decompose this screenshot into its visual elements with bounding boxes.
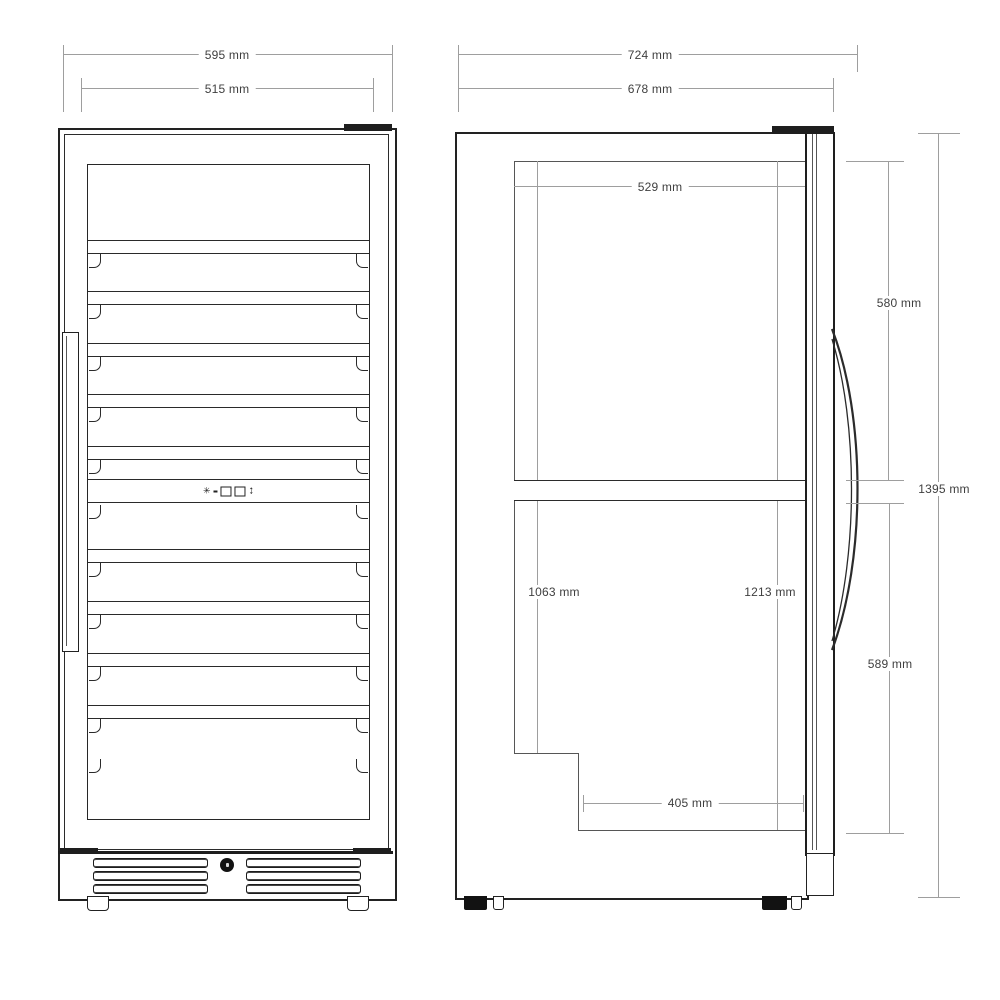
dim-label-lower-zone-height: 589 mm [862, 657, 919, 671]
shelf-bracket [89, 254, 101, 268]
front-door-bottom-corner-left [60, 848, 98, 852]
wine-shelf [88, 549, 369, 563]
dim-label-interior-height-rear: 1063 mm [522, 585, 585, 599]
shelf-bracket [356, 408, 368, 422]
wine-shelf [88, 446, 369, 460]
cavity-top-line [514, 161, 805, 162]
vent-slat [93, 858, 208, 868]
dim-upper-zone-tick-top [846, 161, 904, 162]
control-icons: ✳↕ [203, 486, 254, 497]
display-button-icon [221, 486, 232, 496]
dim-label-total-height: 1395 mm [912, 482, 975, 496]
shelf-bracket [89, 719, 101, 733]
side-roller-rear [791, 896, 802, 910]
shelf-bracket [356, 667, 368, 681]
dim-total-height-tick-bottom [918, 897, 960, 898]
dim-label-interior-height-front: 1213 mm [738, 585, 801, 599]
dim-lower-zone-tick-bottom [846, 833, 904, 834]
dim-label-interior-depth: 529 mm [632, 180, 689, 194]
wine-shelf [88, 653, 369, 667]
dimension-drawing: 595 mm 515 mm ✳↕ 724 mm 678 mm [0, 0, 1000, 1000]
shelf-bracket [89, 305, 101, 319]
vent-slat [246, 884, 361, 894]
side-roller-front [493, 896, 504, 910]
side-dim-body-ext-front [833, 78, 834, 112]
shelf-bracket [89, 759, 101, 773]
zone-divider-shelf [514, 480, 805, 501]
side-door-glass-line-2 [816, 134, 817, 850]
shelf-bracket [89, 357, 101, 371]
wine-shelf [88, 601, 369, 615]
side-door-bottom-block [806, 853, 834, 896]
front-foot-left [87, 896, 109, 911]
display-button-icon [235, 486, 246, 496]
front-foot-right [347, 896, 369, 911]
vent-slat [93, 871, 208, 881]
dim-base-depth-tick-right [803, 795, 804, 812]
asterisk-icon: ✳ [203, 487, 211, 496]
front-top-hinge [344, 124, 392, 131]
front-dim-inner-ext-left [81, 78, 82, 112]
shelf-bracket [356, 759, 368, 773]
lock-keyhole [226, 863, 229, 867]
shelf-bracket [89, 667, 101, 681]
dim-lower-zone-tick-top [846, 503, 904, 504]
shelf-bracket [356, 305, 368, 319]
shelf-bracket [89, 563, 101, 577]
cavity-step [578, 753, 579, 830]
front-dim-overall-ext-right [392, 45, 393, 112]
front-door-bottom-edge [58, 851, 393, 854]
cavity-lower-floor [578, 830, 805, 831]
shelf-bracket [89, 615, 101, 629]
front-door-bottom-corner-right [353, 848, 391, 852]
shelf-bracket [356, 563, 368, 577]
dim-upper-zone-line [888, 161, 889, 480]
dim-label-inner-width: 515 mm [199, 82, 256, 96]
dim-label-overall-depth: 724 mm [622, 48, 679, 62]
side-dim-ext-back [458, 45, 459, 112]
front-door-handle [62, 332, 79, 652]
shelf-bracket [356, 460, 368, 474]
shelf-bracket [356, 615, 368, 629]
shelf-bracket [89, 460, 101, 474]
wine-shelf [88, 240, 369, 254]
cavity-raised-floor [514, 753, 578, 754]
front-dim-overall-ext-left [63, 45, 64, 112]
dash-icon [214, 490, 218, 492]
wine-shelf [88, 394, 369, 408]
dim-total-height-tick-top [918, 133, 960, 134]
vent-slat [246, 858, 361, 868]
side-door-glass-line-1 [812, 134, 813, 850]
dim-label-overall-width: 595 mm [199, 48, 256, 62]
shelf-bracket [356, 719, 368, 733]
dim-upper-zone-tick-bottom [846, 480, 904, 481]
side-foot-rear [762, 896, 787, 910]
shelf-bracket [356, 254, 368, 268]
shelf-bracket [89, 505, 101, 519]
shelf-bracket [356, 505, 368, 519]
dim-label-base-depth: 405 mm [662, 796, 719, 810]
side-dim-overall-ext-front [857, 45, 858, 72]
dim-label-body-depth: 678 mm [622, 82, 679, 96]
dim-label-upper-zone-height: 580 mm [871, 296, 928, 310]
control-panel: ✳↕ [88, 479, 369, 503]
wine-shelf [88, 291, 369, 305]
cavity-back-line [514, 161, 515, 753]
shelf-bracket [356, 357, 368, 371]
side-door-handle [829, 328, 869, 652]
side-body-outline [455, 132, 809, 900]
side-foot-front [464, 896, 487, 910]
vent-slat [246, 871, 361, 881]
dim-total-height-line [938, 133, 939, 897]
wine-shelf [88, 705, 369, 719]
front-glass-area: ✳↕ [87, 164, 370, 820]
wine-shelf [88, 343, 369, 357]
front-dim-inner-ext-right [373, 78, 374, 112]
up-down-arrows-icon: ↕ [249, 486, 255, 497]
vent-slat [93, 884, 208, 894]
ext-line-rear-height [537, 161, 538, 753]
shelf-bracket [89, 408, 101, 422]
dim-base-depth-tick-left [583, 795, 584, 812]
front-door-handle-inner-line [66, 336, 67, 646]
